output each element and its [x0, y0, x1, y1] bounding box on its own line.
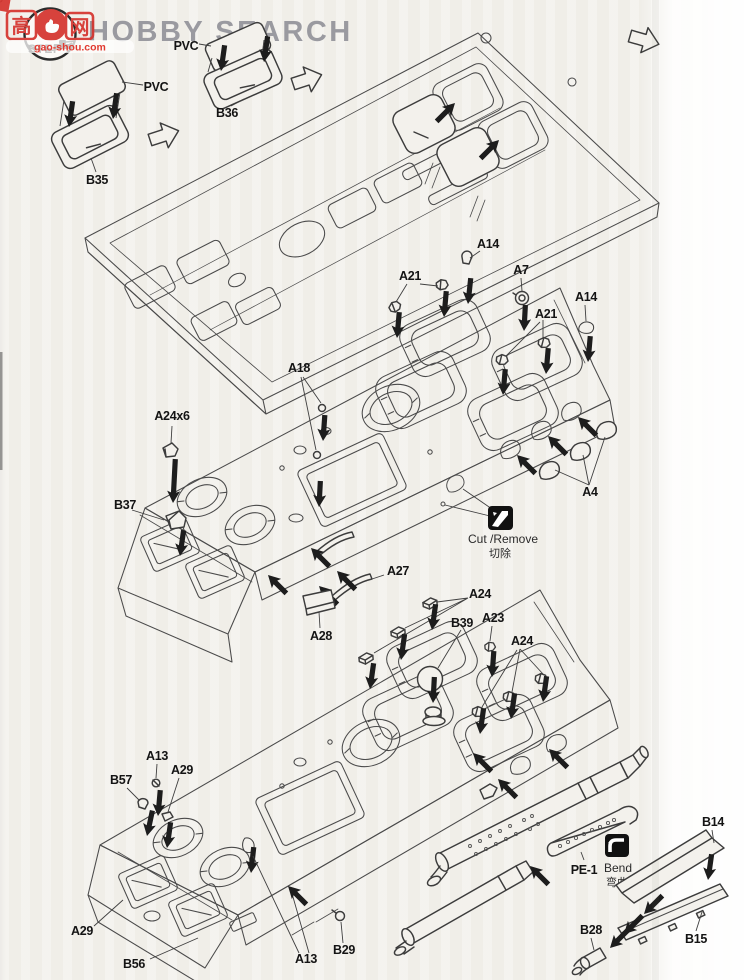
- bend-icon: [605, 834, 629, 857]
- label-a13-top: A13: [146, 749, 168, 763]
- label-b14: B14: [702, 815, 724, 829]
- label-b15: B15: [685, 932, 707, 946]
- label-a29-top: A29: [171, 763, 193, 777]
- label-a18: A18: [288, 361, 310, 375]
- label-b56: B56: [123, 957, 145, 971]
- install-arrow-icon: [486, 651, 501, 678]
- step3-bottom-callouts: A13 B29 A29 B56: [71, 837, 355, 971]
- label-pe1: PE-1: [571, 863, 598, 877]
- step3-a23: A23: [482, 611, 504, 677]
- scan-edge-artifact: [0, 352, 3, 470]
- label-b37: B37: [114, 498, 136, 512]
- install-arrow-icon: [391, 312, 406, 339]
- label-a23: A23: [482, 611, 504, 625]
- cut-remove-text-en: Cut /Remove: [468, 532, 538, 546]
- step3-a24-right: A24: [471, 634, 553, 735]
- label-b39: B39: [451, 616, 473, 630]
- step2-b37: B37: [114, 498, 190, 557]
- label-a14-right: A14: [575, 290, 597, 304]
- install-arrow-icon: [263, 570, 291, 598]
- install-arrow-icon: [582, 336, 597, 363]
- label-a24-left: A24: [469, 587, 491, 601]
- label-pvc-right: PVC: [174, 39, 199, 53]
- label-a21-right: A21: [535, 307, 557, 321]
- label-a7: A7: [513, 263, 529, 277]
- label-pvc-left: PVC: [144, 80, 169, 94]
- label-a29-bottom: A29: [71, 924, 93, 938]
- instruction-diagram: HOBBY SEARCH: [0, 0, 744, 980]
- step2-top-parts: A14 A21 A7 A21 A14: [388, 237, 597, 396]
- install-arrow-icon: [283, 881, 311, 909]
- instruction-sheet-page: HOBBY SEARCH: [0, 0, 744, 980]
- watermark-url: gao-shou.com: [34, 42, 106, 54]
- step2-a24x6: A24x6: [154, 409, 190, 503]
- b35-assembly: PVC B35: [49, 59, 169, 187]
- b28-part: B28: [571, 923, 633, 976]
- install-arrow-icon: [161, 821, 177, 849]
- step1-drawing: PVC B35 PVC B36: [49, 21, 663, 414]
- install-arrow-icon: [497, 369, 512, 396]
- label-b35: B35: [86, 173, 108, 187]
- install-arrow-icon: [544, 744, 572, 772]
- step2-a18: A18: [288, 361, 331, 507]
- install-arrow-icon: [518, 305, 532, 332]
- install-arrow-icon: [167, 459, 182, 504]
- label-a24-right: A24: [511, 634, 533, 648]
- watermark-cn-left: 高: [12, 14, 32, 38]
- label-a4: A4: [582, 485, 598, 499]
- step3-left-parts: A13 A29 B57: [110, 749, 193, 849]
- cut-remove-callout: Cut /Remove 切除: [441, 473, 538, 560]
- install-arrow-icon: [364, 662, 380, 690]
- bend-text-en: Bend: [604, 861, 632, 875]
- label-a13-bottom: A13: [295, 952, 317, 966]
- label-a14-left: A14: [477, 237, 499, 251]
- scan-streak: [652, 0, 659, 980]
- label-b29: B29: [333, 943, 355, 957]
- label-b28: B28: [580, 923, 602, 937]
- direction-arrow-icon: [146, 118, 183, 152]
- label-a27: A27: [387, 564, 409, 578]
- install-arrow-icon: [540, 348, 555, 375]
- label-b57: B57: [110, 773, 132, 787]
- exhaust-assembly: PE-1 Bend 弯曲 B14: [393, 745, 728, 976]
- cut-remove-text-zh: 切除: [489, 546, 511, 560]
- label-a28: A28: [310, 629, 332, 643]
- direction-arrow-icon: [289, 62, 326, 96]
- label-a21-left: A21: [399, 269, 421, 283]
- cut-remove-icon: [488, 506, 513, 530]
- step3-drawing: A24 B39 A23: [71, 587, 728, 980]
- label-b36: B36: [216, 106, 238, 120]
- label-a24x6: A24x6: [154, 409, 190, 423]
- watermark-cn-right: 网: [70, 17, 90, 39]
